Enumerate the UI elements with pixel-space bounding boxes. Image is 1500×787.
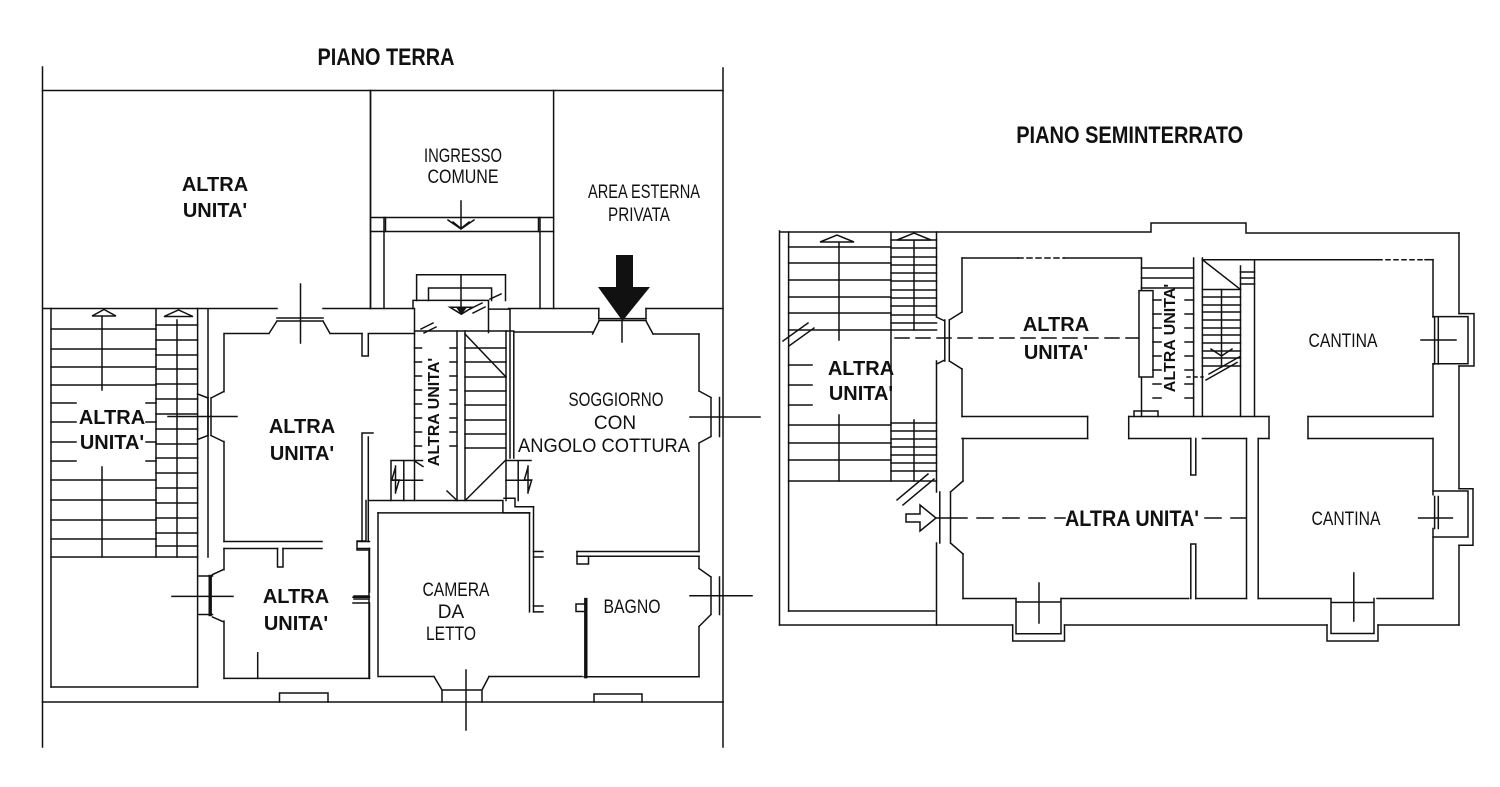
svg-text:UNITA': UNITA' <box>183 200 247 222</box>
svg-text:ANGOLO COTTURA: ANGOLO COTTURA <box>518 436 690 457</box>
svg-text:INGRESSO: INGRESSO <box>424 146 502 167</box>
svg-text:SOGGIORNO: SOGGIORNO <box>569 390 664 411</box>
svg-text:UNITA': UNITA' <box>1024 342 1088 364</box>
svg-text:CANTINA: CANTINA <box>1309 331 1378 352</box>
svg-text:PRIVATA: PRIVATA <box>608 205 670 226</box>
svg-text:BAGNO: BAGNO <box>604 597 661 618</box>
svg-text:ALTRA: ALTRA <box>182 174 248 196</box>
svg-text:ALTRA UNITA': ALTRA UNITA' <box>1065 506 1199 531</box>
svg-text:UNITA': UNITA' <box>264 613 328 635</box>
svg-text:COMUNE: COMUNE <box>428 167 499 188</box>
svg-text:PIANO TERRA: PIANO TERRA <box>318 44 455 71</box>
svg-text:UNITA': UNITA' <box>270 443 334 465</box>
svg-text:CAMERA: CAMERA <box>423 580 490 601</box>
svg-text:ALTRA: ALTRA <box>1023 314 1089 336</box>
svg-text:PIANO SEMINTERRATO: PIANO SEMINTERRATO <box>1016 122 1243 149</box>
svg-text:LETTO: LETTO <box>426 624 476 645</box>
svg-text:ALTRA: ALTRA <box>828 358 894 380</box>
svg-text:ALTRA UNITA': ALTRA UNITA' <box>426 358 443 466</box>
svg-text:ALTRA UNITA': ALTRA UNITA' <box>1162 284 1179 392</box>
svg-text:CANTINA: CANTINA <box>1312 509 1381 530</box>
svg-text:CON: CON <box>594 413 636 434</box>
svg-text:UNITA': UNITA' <box>80 432 144 454</box>
svg-text:ALTRA: ALTRA <box>269 416 335 438</box>
svg-text:DA: DA <box>438 602 465 623</box>
svg-text:UNITA': UNITA' <box>829 383 893 405</box>
svg-text:AREA ESTERNA: AREA ESTERNA <box>588 182 700 203</box>
svg-text:ALTRA: ALTRA <box>263 586 329 608</box>
svg-text:ALTRA: ALTRA <box>79 407 145 429</box>
